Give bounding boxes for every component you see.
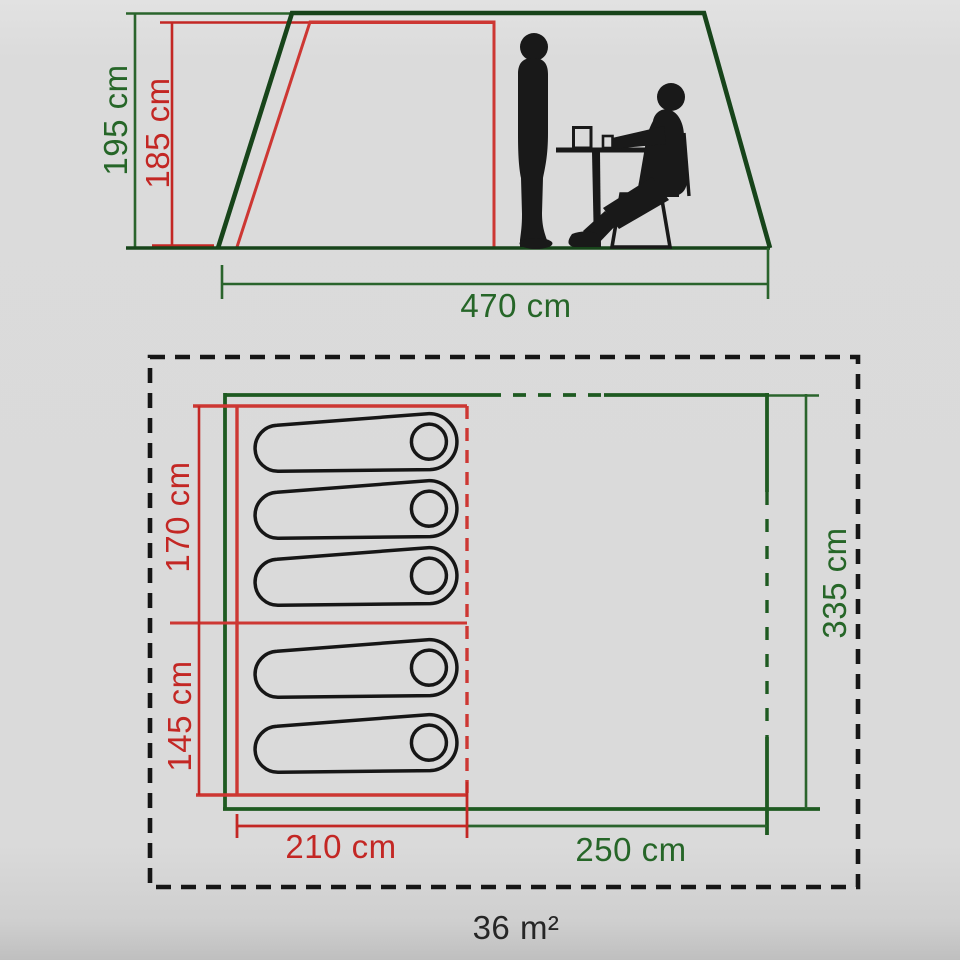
sleeping-bags: [254, 412, 458, 778]
bedroom-outline: [170, 406, 467, 795]
tent-dimension-diagram: 195 cm 185 cm 470 cm 170 cm 145 cm 335 c…: [0, 0, 960, 960]
base-width-label: 470 cm: [460, 287, 571, 325]
total-area-label: 36 m²: [473, 909, 560, 947]
inner-tent-outline: [237, 22, 494, 247]
seated-person-head: [657, 83, 685, 111]
seated-person-foot: [568, 232, 599, 248]
sleeping-bag: [254, 412, 458, 477]
standing-person-body: [518, 58, 548, 247]
sleeping-bag: [254, 638, 458, 703]
living-width-label: 250 cm: [575, 831, 686, 869]
seated-person-figure: [568, 83, 689, 247]
sleeping-bag: [254, 479, 458, 544]
seated-person-hip: [645, 181, 679, 197]
cup-large: [574, 128, 592, 149]
side-view-group: [126, 13, 770, 299]
sleeping-bag: [254, 713, 458, 778]
outer-height-label: 195 cm: [97, 64, 135, 175]
standing-person-figure: [518, 33, 553, 249]
standing-person-feet: [520, 238, 553, 249]
sleeping-bag: [254, 546, 458, 611]
floor-plan-group: [150, 357, 858, 887]
inner-length-dimension-line: [769, 394, 819, 809]
bed-section-b-label: 145 cm: [161, 660, 199, 771]
inner-length-label: 335 cm: [816, 527, 854, 638]
bed-section-a-label: 170 cm: [159, 461, 197, 572]
inner-tent-plan: [223, 393, 820, 835]
cup-small: [603, 136, 613, 148]
bed-width-label: 210 cm: [285, 828, 396, 866]
inner-height-label: 185 cm: [139, 77, 177, 188]
standing-person-head: [520, 33, 548, 61]
